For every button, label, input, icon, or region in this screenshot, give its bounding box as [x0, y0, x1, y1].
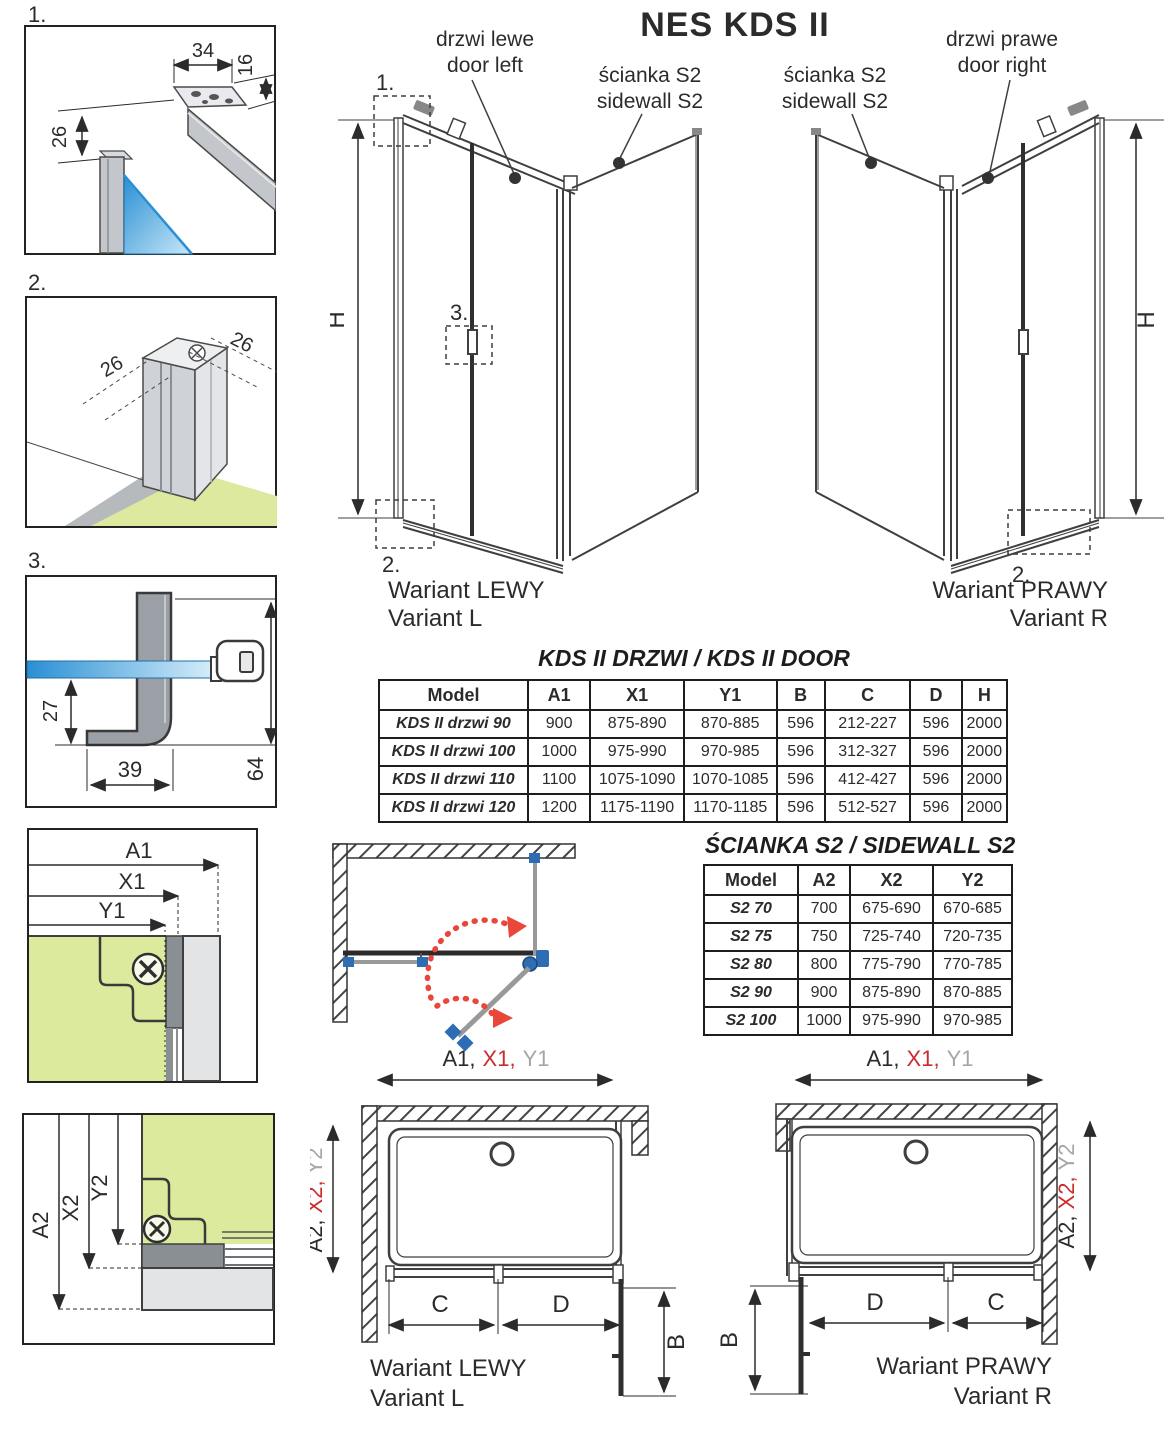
cell: 412-427: [825, 766, 911, 794]
view-left-variant-label-pl: Wariant LEWY: [388, 577, 544, 604]
view-right-drawing: [811, 100, 1164, 573]
cell: KDS II drzwi 110: [379, 766, 528, 794]
table-row: S2 90 900 875-890 870-885: [704, 979, 1012, 1007]
view-left-marker-1: 1.: [376, 70, 394, 95]
cell: 1100: [528, 766, 590, 794]
plan-right-depth-dim: A2,X2,Y2: [1054, 1144, 1079, 1249]
detail-1-dim-26: 26: [49, 126, 71, 148]
plan-detail-a2-drawing: [142, 1115, 273, 1310]
swing-walls: [333, 844, 575, 1022]
cell: 700: [798, 895, 850, 923]
plan-left-depth-dim: A2,X2,Y2: [310, 1148, 327, 1253]
drain: [905, 1141, 927, 1163]
cell: 512-527: [825, 794, 911, 822]
plan-right-variant-label-en: Variant R: [954, 1383, 1052, 1410]
plan-detail-x2-label: X2: [58, 1195, 83, 1222]
cell: S2 80: [704, 951, 798, 979]
plan-right-width-dim: A1,X1,Y1: [867, 1046, 974, 1071]
plan-left-width-dim: A1,X1,Y1: [443, 1046, 550, 1071]
view-left-h-label: H: [330, 311, 350, 328]
cell: 875-890: [590, 710, 684, 738]
header-cell: Model: [704, 865, 798, 895]
cell: 1000: [528, 738, 590, 766]
plan-detail-y2-label: Y2: [87, 1175, 112, 1202]
header-cell: D: [910, 680, 961, 710]
cell: 775-790: [850, 951, 933, 979]
cell: 670-685: [933, 895, 1012, 923]
cell: 975-990: [590, 738, 684, 766]
door-handle: [1019, 330, 1028, 354]
cell: 870-885: [933, 979, 1012, 1007]
cell: 2000: [962, 710, 1007, 738]
cell: 596: [777, 738, 825, 766]
cell: 770-785: [933, 951, 1012, 979]
cell: 975-990: [850, 1007, 933, 1035]
door-table-title: KDS II DRZWI / KDS II DOOR: [378, 645, 1010, 672]
detail-1-dim-34: 34: [192, 40, 214, 62]
header-cell: B: [777, 680, 825, 710]
cell: 900: [528, 710, 590, 738]
cell: 596: [910, 738, 961, 766]
header-cell: C: [825, 680, 911, 710]
cell: 1175-1190: [590, 794, 684, 822]
table-row: S2 70 700 675-690 670-685: [704, 895, 1012, 923]
cell: KDS II drzwi 120: [379, 794, 528, 822]
detail-1-dim-16: 16: [235, 54, 257, 76]
view-left-sidewall-label-en: sidewall S2: [597, 90, 703, 113]
door-table: Model A1 X1 Y1 B C D H KDS II drzwi 90 9…: [378, 679, 1008, 823]
swing-arrows: [427, 916, 527, 1028]
view-left-marker-3: 3.: [450, 300, 468, 325]
header-cell: A1: [528, 680, 590, 710]
header-cell: A2: [798, 865, 850, 895]
plan-detail-a1-figure: A1 X1 Y1: [27, 828, 258, 1083]
technical-sheet: NES KDS II 1. 2. 3.: [0, 0, 1172, 1440]
cell: 800: [798, 951, 850, 979]
plan-detail-y1-label: Y1: [99, 898, 126, 923]
cell: 1200: [528, 794, 590, 822]
plan-detail-a1-drawing: [29, 936, 220, 1081]
table-row: KDS II drzwi 90 900 875-890 870-885 596 …: [379, 710, 1007, 738]
table-row: KDS II drzwi 100 1000 975-990 970-985 59…: [379, 738, 1007, 766]
cell: 1170-1185: [684, 794, 777, 822]
cell: 970-985: [684, 738, 777, 766]
table-row: S2 75 750 725-740 720-735: [704, 923, 1012, 951]
header-cell: Model: [379, 680, 528, 710]
plan-left-variant-label-en: Variant L: [370, 1385, 464, 1412]
view-right-h-label: H: [1133, 311, 1160, 328]
table-row: S2 80 800 775-790 770-785: [704, 951, 1012, 979]
plan-right-variant-label-pl: Wariant PRAWY: [876, 1353, 1052, 1380]
plan-right-b-label: B: [716, 1332, 743, 1348]
detail-2-marker: 2.: [28, 270, 46, 296]
cell: 970-985: [933, 1007, 1012, 1035]
cell: 596: [777, 794, 825, 822]
cell: 1075-1090: [590, 766, 684, 794]
plan-left-variant-label-pl: Wariant LEWY: [370, 1355, 526, 1382]
cell: 596: [910, 794, 961, 822]
header-cell: Y1: [684, 680, 777, 710]
plan-right-c-label: C: [987, 1289, 1004, 1316]
table-row: KDS II drzwi 120 1200 1175-1190 1170-118…: [379, 794, 1007, 822]
detail-1-figure: 34 16 26: [24, 25, 276, 255]
sidewall-table-title: ŚCIANKA S2 / SIDEWALL S2: [700, 832, 1020, 859]
plan-left-variant: A1,X1,Y1: [310, 1040, 710, 1440]
cell: 720-735: [933, 923, 1012, 951]
view-right-variant-label-pl: Wariant PRAWY: [932, 577, 1108, 604]
detail-3-dim-64: 64: [243, 757, 268, 781]
view-right-door-label-pl: drzwi prawe: [946, 30, 1058, 51]
cell: 750: [798, 923, 850, 951]
drain: [491, 1143, 513, 1165]
view-right-variant: H 2. drzwi prawe door right ścianka S2 s…: [740, 30, 1172, 640]
plan-left-d-label: D: [552, 1291, 569, 1318]
view-left-variant-label-en: Variant L: [388, 605, 482, 632]
view-left-drawing: [338, 100, 702, 573]
door-swing-diagram: [325, 840, 645, 1055]
cell: S2 90: [704, 979, 798, 1007]
header-cell: Y2: [933, 865, 1012, 895]
cell: 1000: [798, 1007, 850, 1035]
cell: 2000: [962, 766, 1007, 794]
cell: 596: [777, 710, 825, 738]
view-left-marker-2: 2.: [382, 552, 400, 577]
view-right-variant-label-en: Variant R: [1010, 605, 1108, 632]
cell: 596: [910, 766, 961, 794]
header-cell: X2: [850, 865, 933, 895]
plan-left-c-label: C: [431, 1291, 448, 1318]
cell: 2000: [962, 738, 1007, 766]
header-cell: H: [962, 680, 1007, 710]
plan-left-b-label: B: [663, 1334, 690, 1350]
cell: 1070-1085: [684, 766, 777, 794]
detail-3-dim-27: 27: [40, 700, 62, 722]
view-left-door-label-en: door left: [447, 54, 523, 77]
cell: KDS II drzwi 90: [379, 710, 528, 738]
view-left-markers: [374, 96, 492, 548]
plan-right-variant: A1,X1,Y1: [700, 1040, 1172, 1440]
plan-detail-a2-figure: A2 X2 Y2: [22, 1113, 275, 1345]
cell: S2 75: [704, 923, 798, 951]
view-right-sidewall-label-en: sidewall S2: [782, 90, 888, 113]
header-cell: X1: [590, 680, 684, 710]
sidewall-table-header-row: Model A2 X2 Y2: [704, 865, 1012, 895]
table-row: S2 100 1000 975-990 970-985: [704, 1007, 1012, 1035]
cell: 312-327: [825, 738, 911, 766]
detail-3-dim-39: 39: [118, 757, 142, 782]
detail-2-figure: 26 26: [25, 296, 277, 528]
sidewall-table: Model A2 X2 Y2 S2 70 700 675-690 670-685…: [703, 864, 1013, 1036]
detail-3-marker: 3.: [28, 548, 46, 574]
view-right-door-label-en: door right: [958, 54, 1047, 77]
plan-detail-a2-label: A2: [28, 1212, 53, 1239]
table-row: KDS II drzwi 110 1100 1075-1090 1070-108…: [379, 766, 1007, 794]
plan-detail-a1-label: A1: [126, 838, 153, 863]
plan-right-d-label: D: [866, 1289, 883, 1316]
view-right-sidewall-label-pl: ścianka S2: [784, 64, 887, 87]
view-left-variant: H 1. 2. 3. drzwi lewe door left ścianka …: [330, 30, 760, 640]
cell: 900: [798, 979, 850, 1007]
cell: 2000: [962, 794, 1007, 822]
cell: S2 100: [704, 1007, 798, 1035]
cell: 725-740: [850, 923, 933, 951]
view-left-sidewall-label-pl: ścianka S2: [599, 64, 702, 87]
hinge: [536, 950, 549, 967]
cell: KDS II drzwi 100: [379, 738, 528, 766]
cell: 596: [777, 766, 825, 794]
view-left-door-label-pl: drzwi lewe: [436, 30, 534, 51]
plan-detail-x1-label: X1: [119, 869, 146, 894]
detail-3-figure: 27 39 64: [25, 575, 277, 808]
cell: 875-890: [850, 979, 933, 1007]
cell: 596: [910, 710, 961, 738]
cell: 675-690: [850, 895, 933, 923]
cell: 212-227: [825, 710, 911, 738]
cell: 870-885: [684, 710, 777, 738]
cell: S2 70: [704, 895, 798, 923]
swing-glass-parts: [343, 853, 549, 1051]
door-handle: [468, 330, 477, 354]
door-table-header-row: Model A1 X1 Y1 B C D H: [379, 680, 1007, 710]
